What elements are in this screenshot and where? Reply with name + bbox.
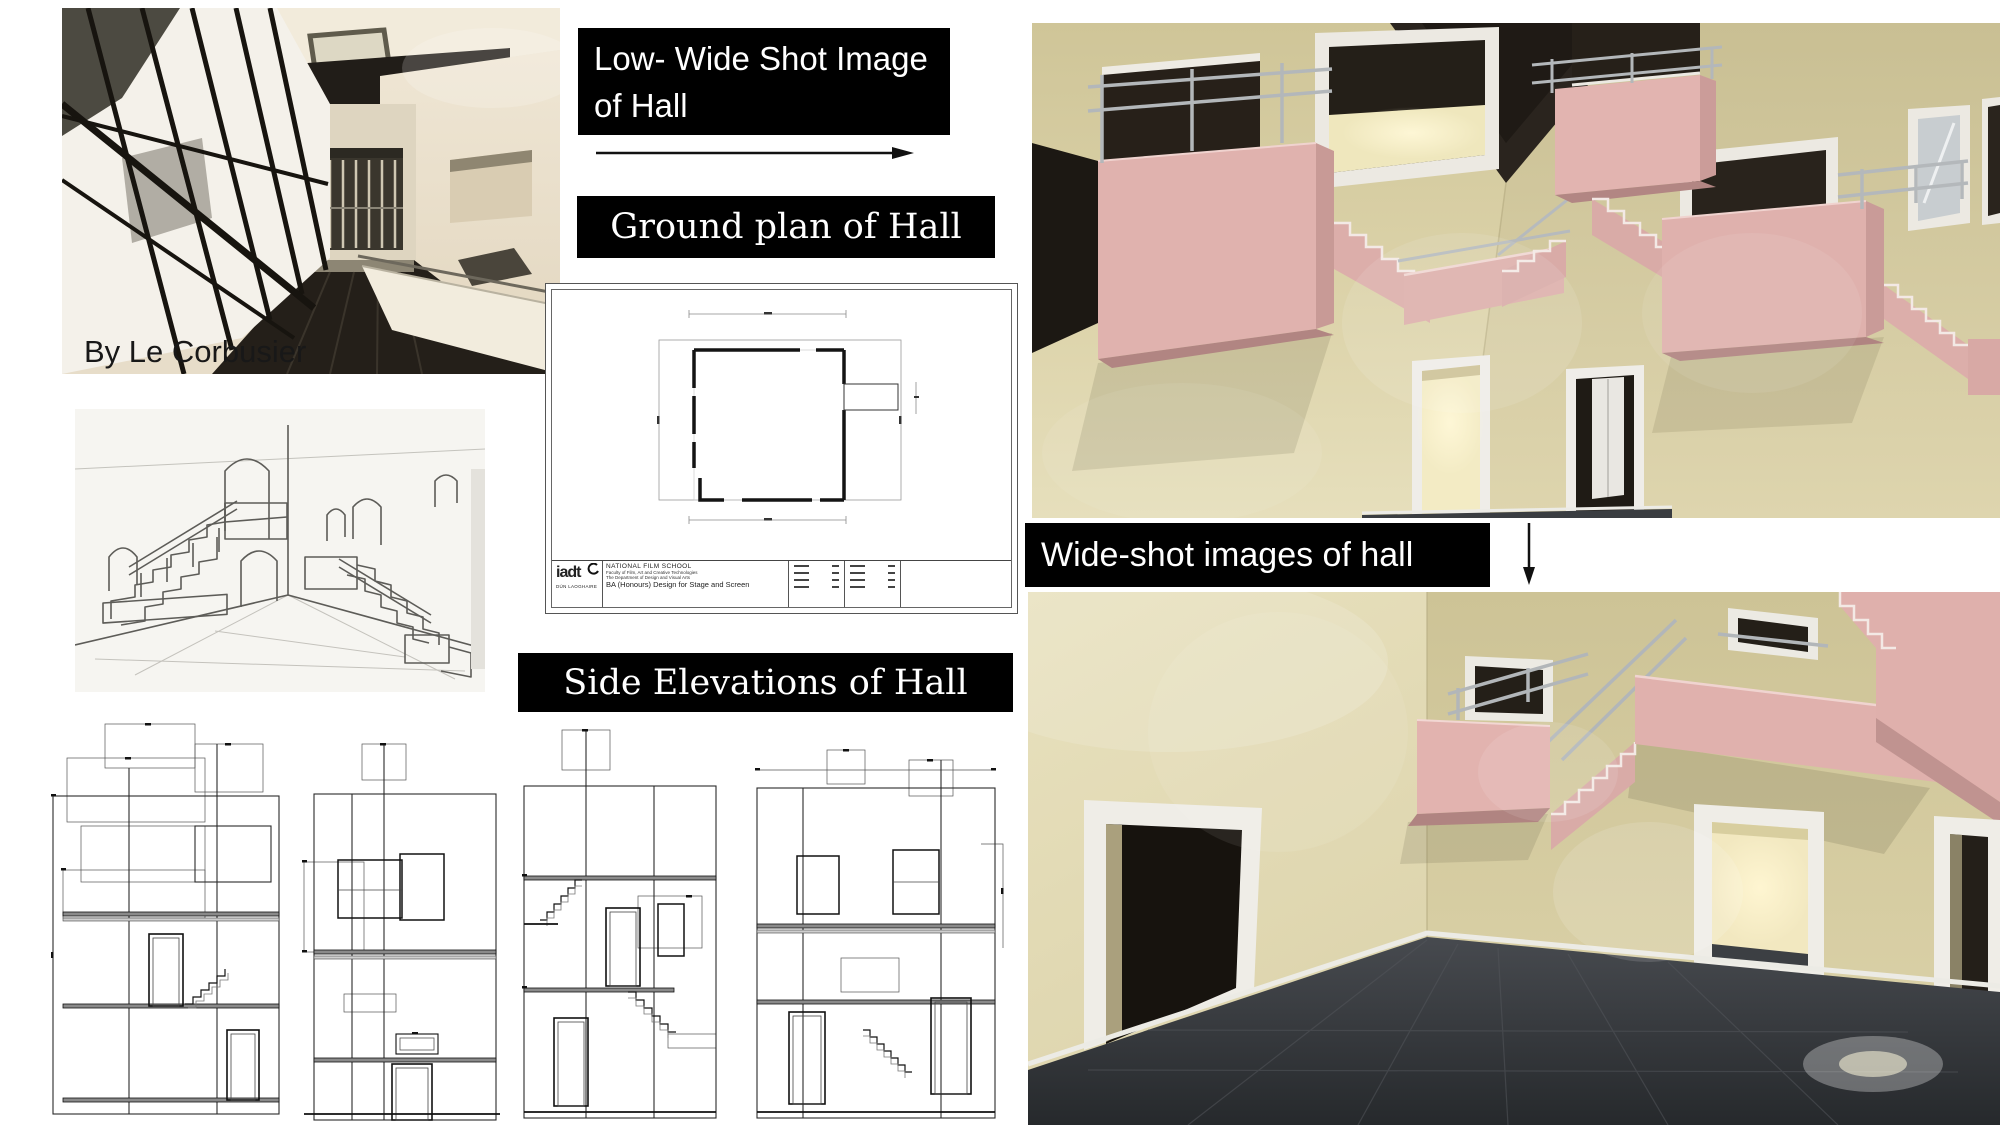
render-low-wide-shot: [1032, 23, 2000, 518]
render-wide-art: [1028, 592, 2000, 1125]
ground-plan-drawing-sheet: iadt DÚN LAOGHAIRE NATIONAL FILM SCHOOL …: [545, 283, 1018, 614]
stair-sketch-art: [75, 409, 485, 692]
side-elevation-2: [300, 742, 510, 1125]
render-wide-shot: [1028, 592, 2000, 1125]
label-wide-shot: Wide-shot images of hall: [1025, 523, 1490, 587]
stair-sketch: [75, 409, 485, 692]
down-arrow-icon: [1519, 521, 1539, 587]
title-block-fields: [844, 561, 900, 607]
sheet-inner-frame: iadt DÚN LAOGHAIRE NATIONAL FILM SCHOOL …: [551, 289, 1012, 608]
side-elevation-3: [518, 728, 723, 1125]
right-arrow-icon: [594, 143, 916, 163]
iadt-logo-icon: [586, 563, 600, 577]
corbusier-photo-art: [62, 8, 560, 374]
render-low-wide-art: [1032, 23, 2000, 518]
label-low-wide-shot: Low- Wide Shot Image of Hall: [578, 28, 950, 135]
label-side-elevations: Side Elevations of Hall: [518, 653, 1013, 712]
presentation-slide: By Le Corbusier Low- Wide Shot Image of …: [0, 0, 2000, 1125]
title-block-info: NATIONAL FILM SCHOOL Faculty of Film, Ar…: [602, 561, 788, 607]
label-ground-plan: Ground plan of Hall: [577, 196, 995, 258]
title-block-fields: [788, 561, 844, 607]
title-block-empty-cell: [900, 561, 1011, 607]
ground-plan-art: [554, 292, 1011, 530]
side-elevation-1: [45, 722, 295, 1125]
side-elevation-4: [745, 748, 1007, 1125]
photo-credit-caption: By Le Corbusier: [84, 334, 306, 370]
corbusier-photo: By Le Corbusier: [62, 8, 560, 374]
title-block: iadt DÚN LAOGHAIRE NATIONAL FILM SCHOOL …: [552, 560, 1011, 607]
iadt-logo: iadt DÚN LAOGHAIRE: [552, 561, 602, 607]
